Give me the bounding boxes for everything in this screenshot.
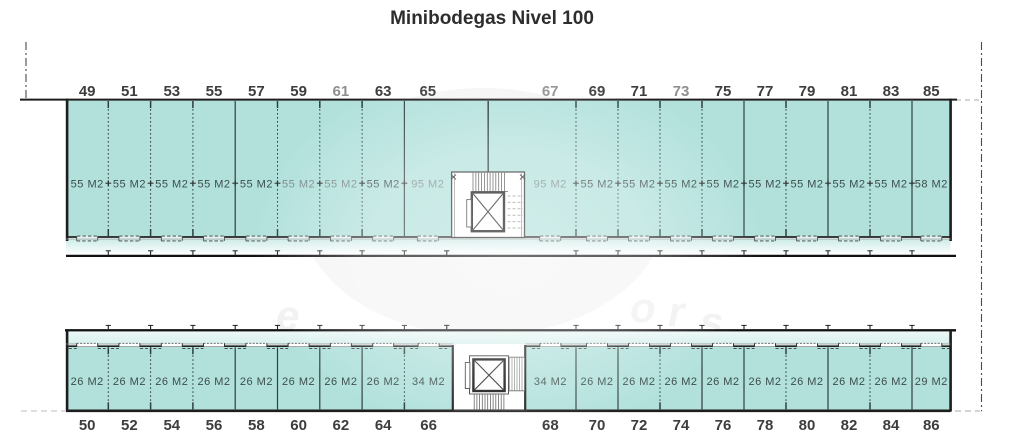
svg-text:52: 52	[121, 417, 138, 434]
svg-text:54: 54	[163, 417, 180, 434]
svg-text:84: 84	[883, 417, 900, 434]
svg-text:55 M2: 55 M2	[790, 179, 823, 191]
svg-text:29 M2: 29 M2	[915, 376, 948, 388]
svg-text:75: 75	[715, 83, 732, 100]
svg-text:26 M2: 26 M2	[790, 376, 823, 388]
svg-text:50: 50	[79, 417, 96, 434]
svg-text:81: 81	[841, 83, 858, 100]
svg-text:55 M2: 55 M2	[197, 179, 230, 191]
svg-text:57: 57	[248, 83, 265, 100]
svg-text:55: 55	[206, 83, 223, 100]
svg-text:60: 60	[290, 417, 307, 434]
svg-text:26 M2: 26 M2	[874, 376, 907, 388]
svg-text:26 M2: 26 M2	[155, 376, 188, 388]
svg-text:82: 82	[841, 417, 858, 434]
svg-text:26 M2: 26 M2	[71, 376, 104, 388]
svg-text:26 M2: 26 M2	[282, 376, 315, 388]
svg-text:78: 78	[757, 417, 774, 434]
svg-text:77: 77	[757, 83, 774, 100]
svg-text:51: 51	[121, 83, 138, 100]
svg-text:26 M2: 26 M2	[706, 376, 739, 388]
svg-text:79: 79	[799, 83, 816, 100]
svg-text:Minibodegas Nivel 100: Minibodegas Nivel 100	[390, 8, 594, 29]
svg-text:59: 59	[290, 83, 307, 100]
svg-text:61: 61	[333, 83, 350, 100]
svg-text:76: 76	[715, 417, 732, 434]
svg-text:55 M2: 55 M2	[113, 179, 146, 191]
svg-text:72: 72	[631, 417, 648, 434]
svg-text:58 M2: 58 M2	[915, 179, 948, 191]
svg-text:53: 53	[163, 83, 180, 100]
svg-text:26 M2: 26 M2	[748, 376, 781, 388]
svg-text:86: 86	[923, 417, 940, 434]
svg-text:85: 85	[923, 83, 940, 100]
svg-text:73: 73	[673, 83, 690, 100]
svg-text:55 M2: 55 M2	[832, 179, 865, 191]
svg-text:55 M2: 55 M2	[71, 179, 104, 191]
svg-text:55 M2: 55 M2	[155, 179, 188, 191]
svg-text:74: 74	[673, 417, 690, 434]
svg-text:26 M2: 26 M2	[113, 376, 146, 388]
svg-text:83: 83	[883, 83, 900, 100]
svg-text:58: 58	[248, 417, 265, 434]
svg-text:55 M2: 55 M2	[874, 179, 907, 191]
svg-text:56: 56	[206, 417, 223, 434]
svg-text:55 M2: 55 M2	[748, 179, 781, 191]
svg-text:26 M2: 26 M2	[832, 376, 865, 388]
svg-text:26 M2: 26 M2	[197, 376, 230, 388]
svg-text:64: 64	[375, 417, 392, 434]
svg-text:80: 80	[799, 417, 816, 434]
svg-text:49: 49	[79, 83, 96, 100]
svg-text:26 M2: 26 M2	[240, 376, 273, 388]
svg-text:62: 62	[333, 417, 350, 434]
